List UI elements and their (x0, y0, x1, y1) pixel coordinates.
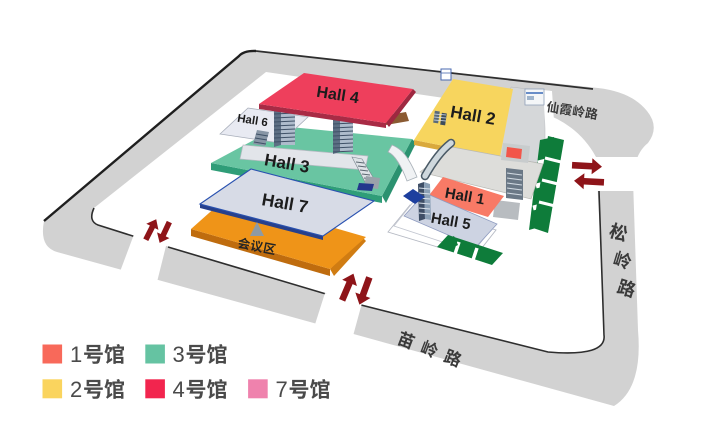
svg-text:2: 2 (70, 377, 82, 402)
svg-text:4: 4 (173, 377, 185, 402)
svg-text:3: 3 (173, 342, 185, 367)
svg-text:7: 7 (276, 377, 288, 402)
svg-text:1: 1 (70, 342, 82, 367)
